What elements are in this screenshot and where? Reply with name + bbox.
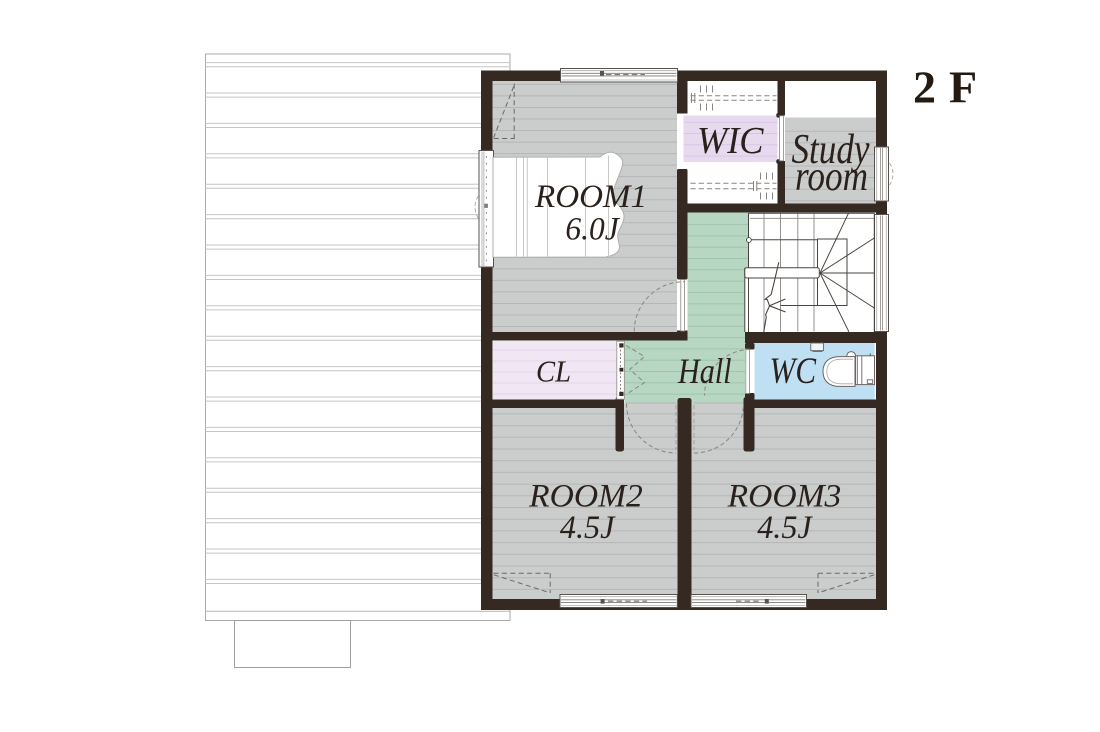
svg-text:room: room [795,154,868,200]
svg-text:WC: WC [770,351,818,392]
svg-text:4.5J: 4.5J [560,510,616,546]
svg-text:ROOM2: ROOM2 [528,478,643,514]
svg-text:2: 2 [913,62,936,113]
svg-text:ROOM1: ROOM1 [534,179,647,215]
svg-text:ROOM3: ROOM3 [727,478,842,514]
svg-text:Hall: Hall [677,351,731,391]
svg-text:F: F [949,62,977,113]
svg-text:6.0J: 6.0J [565,212,620,248]
svg-text:CL: CL [536,354,571,389]
svg-text:WIC: WIC [697,120,764,162]
svg-text:4.5J: 4.5J [757,510,813,546]
